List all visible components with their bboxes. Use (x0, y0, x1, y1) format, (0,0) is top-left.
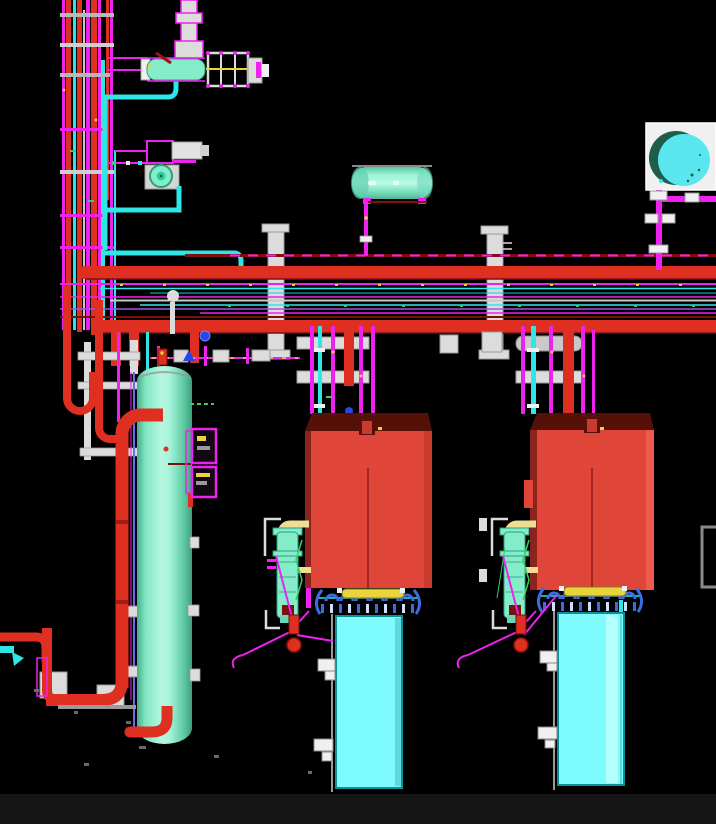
bottom-bar (0, 794, 716, 824)
instrument-dot (200, 331, 210, 341)
drain-valve-handwheel (287, 638, 301, 652)
drain-valve-handwheel (514, 638, 528, 652)
equipment-box-left[interactable] (305, 413, 432, 588)
cad-window (0, 0, 716, 824)
equipment-box-right[interactable] (530, 413, 654, 590)
model-viewport[interactable] (0, 0, 716, 824)
